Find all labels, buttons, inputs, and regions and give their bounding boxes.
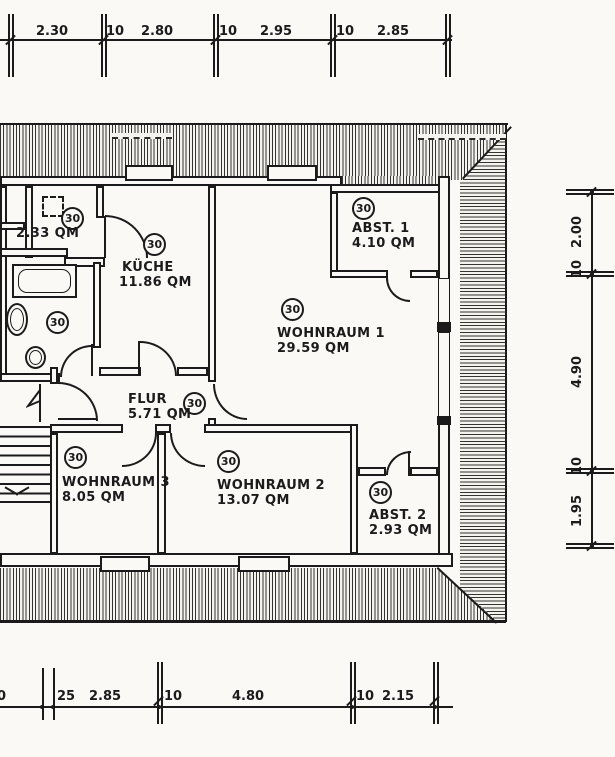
wall-segment [358, 467, 386, 476]
band-edge-top [0, 123, 508, 125]
sink-inner [10, 308, 24, 331]
door-leaf [408, 451, 410, 476]
wall-segment [96, 186, 104, 218]
wall-segment [0, 186, 7, 375]
wall-segment [93, 262, 101, 348]
room-area-abst1: 4.10 QM [352, 236, 415, 251]
dim-tick [157, 662, 159, 724]
window [100, 556, 150, 572]
dim-right-label: 1.95 [571, 489, 585, 533]
wall-segment [330, 192, 338, 278]
dim-tick [433, 662, 435, 724]
door-arc-entrance [58, 382, 98, 421]
room-area-flur: 5.71 QM [128, 407, 191, 422]
dim-top-label: 10 [336, 24, 354, 39]
door-arc-wohnraum3 [122, 433, 157, 467]
wall-segment [50, 433, 58, 554]
dim-tick-dot [157, 705, 161, 709]
dim-bottom-label: 10 [164, 689, 182, 704]
room-name-kueche: KÜCHE [122, 260, 174, 275]
dim-tick [12, 14, 14, 77]
window [438, 278, 450, 325]
bathtub-inner [18, 269, 71, 293]
room-circle-abst2: 30 [369, 481, 392, 504]
wall-exterior-top-abst1 [330, 184, 440, 193]
room-area-kueche: 11.86 QM [119, 275, 192, 290]
room-circle-abst1: 30 [352, 197, 375, 220]
dim-top-label: 10 [106, 24, 124, 39]
roof-band-right [460, 128, 507, 621]
window [438, 332, 450, 421]
wall-segment [0, 248, 68, 257]
dim-bottom-label: 0 [0, 689, 6, 704]
wall-segment [157, 433, 166, 554]
dim-right-label: 10 [571, 247, 585, 291]
dim-tick [445, 14, 447, 77]
wall-segment [99, 367, 141, 376]
dim-tick-dot [590, 544, 594, 548]
room-name-abst1: ABST. 1 [352, 221, 410, 236]
dim-tick [161, 662, 163, 724]
floor-plan-drawing: 2.30 10 2.80 10 2.95 10 2.85 [0, 0, 615, 757]
dim-bottom-label: 2.85 [89, 689, 121, 704]
dim-tick-dot [40, 705, 44, 709]
door-arc-wohnraum2 [170, 433, 205, 467]
door-leaf [138, 341, 140, 376]
wall-segment [155, 424, 171, 433]
dim-tick-dot [590, 469, 594, 473]
room-circle-bad: 30 [46, 311, 69, 334]
door-arc-abst1 [386, 278, 410, 302]
dim-tick-dot [350, 705, 354, 709]
dim-top-label: 2.95 [260, 24, 292, 39]
stair-edge [0, 501, 50, 503]
dim-bottom-label: 10 [356, 689, 374, 704]
dim-tick [330, 14, 332, 77]
wall-segment [410, 270, 438, 278]
band-edge-bottom [0, 620, 506, 623]
room-area-wohnraum1: 29.59 QM [277, 341, 350, 356]
room-area-wohnraum2: 13.07 QM [217, 493, 290, 508]
dim-top-label: 10 [219, 24, 237, 39]
dim-bottom-label: 25 [57, 689, 75, 704]
dim-tick [8, 14, 10, 77]
wall-segment [50, 367, 58, 384]
window [125, 165, 173, 181]
wall-segment [350, 424, 358, 554]
roof-band-bottom [0, 568, 499, 621]
dim-tick-dot [590, 272, 594, 276]
room-circle-wohnraum1: 30 [281, 298, 304, 321]
dim-top-label: 2.80 [141, 24, 173, 39]
door-arc-flur-wohnraum1 [213, 384, 247, 420]
room-name-abst2: ABST. 2 [369, 508, 427, 523]
wall-segment [177, 367, 208, 376]
room-name-wohnraum2: WOHNRAUM 2 [217, 478, 325, 493]
door-arc-kueche [105, 215, 148, 258]
window-jamb [437, 322, 451, 332]
room-name-wohnraum3: WOHNRAUM 3 [62, 475, 170, 490]
door-arc-flur-kueche [140, 341, 177, 376]
window [267, 165, 317, 181]
dim-tick [101, 14, 103, 77]
band-edge-right [505, 125, 507, 622]
dim-right-label: 4.90 [571, 350, 585, 394]
wall-segment [330, 270, 388, 278]
door-leaf [91, 344, 93, 376]
window-jamb [437, 416, 451, 425]
dim-tick [213, 14, 215, 77]
dim-tick [350, 662, 352, 724]
lintel-dashed-line [112, 133, 172, 139]
room-name-wohnraum1: WOHNRAUM 1 [277, 326, 385, 341]
wall-segment [204, 424, 358, 433]
door-arc-bad [60, 345, 92, 377]
room-area-wohnraum3: 8.05 QM [62, 490, 125, 505]
dim-tick-dot [51, 705, 55, 709]
wall-segment [208, 186, 216, 382]
door-leaf [58, 418, 96, 420]
wall-exterior-bottom [0, 553, 453, 567]
toilet-inner [29, 350, 42, 365]
dim-bottom-label: 4.80 [232, 689, 264, 704]
dimension-line-top [0, 39, 452, 41]
lintel-dashed-line [418, 134, 506, 140]
dim-bottom-label: 2.15 [382, 689, 414, 704]
dim-tick [437, 662, 439, 724]
dim-top-label: 2.30 [36, 24, 68, 39]
dim-tick [449, 14, 451, 77]
room-circle-wohnraum2: 30 [217, 450, 240, 473]
room-area-bad-klein: 2.33 QM [16, 226, 79, 241]
wall-segment [410, 467, 438, 476]
window [238, 556, 290, 572]
dim-right-label: 10 [571, 444, 585, 488]
entrance-door-swing-symbol [26, 383, 46, 425]
dim-tick [53, 668, 55, 720]
dimension-line-bottom [0, 706, 453, 708]
dim-tick [42, 668, 44, 720]
room-circle-kueche: 30 [143, 233, 166, 256]
dim-tick-dot [433, 705, 437, 709]
room-area-abst2: 2.93 QM [369, 523, 432, 538]
dimension-line-right [591, 189, 593, 548]
wall-segment [50, 424, 123, 433]
door-leaf [104, 216, 106, 258]
room-circle-wohnraum3: 30 [64, 446, 87, 469]
dim-tick-dot [590, 190, 594, 194]
room-name-flur: FLUR [128, 392, 167, 407]
dim-top-label: 2.85 [377, 24, 409, 39]
